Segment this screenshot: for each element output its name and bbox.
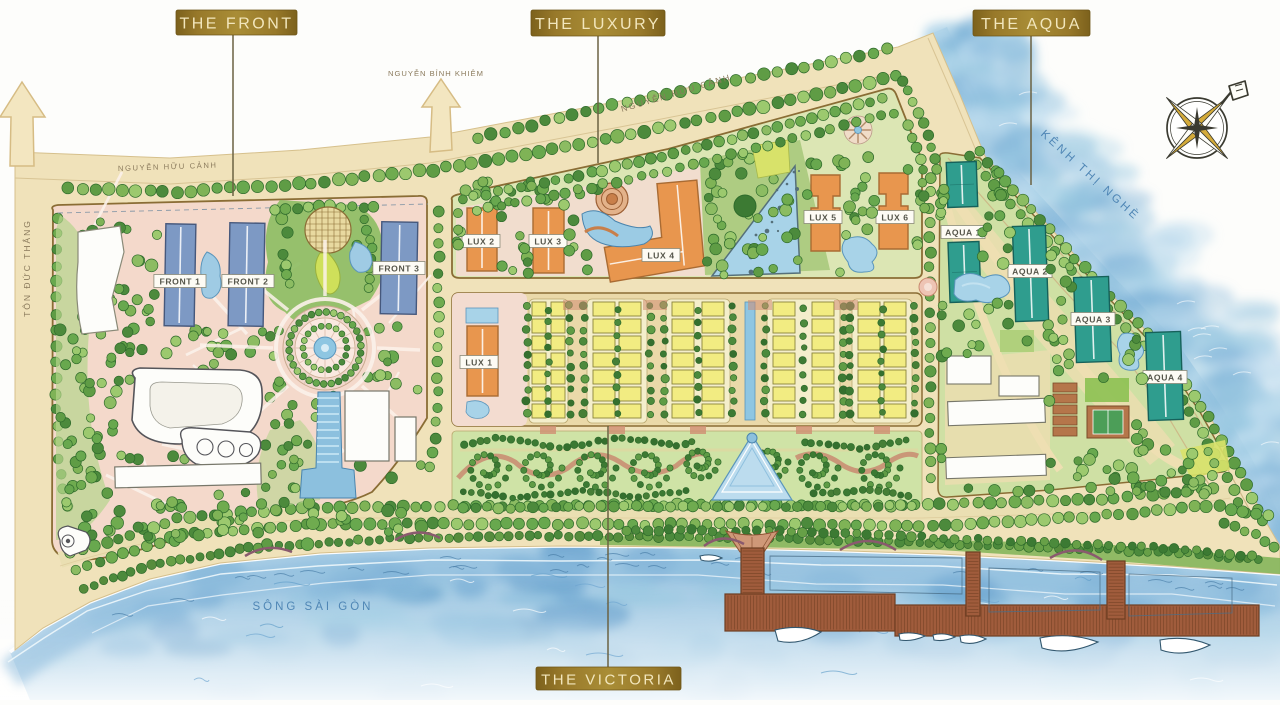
svg-text:THE LUXURY: THE LUXURY <box>535 16 661 33</box>
svg-text:FRONT 2: FRONT 2 <box>228 276 269 286</box>
svg-text:AQUA 3: AQUA 3 <box>1075 314 1111 324</box>
svg-text:THE AQUA: THE AQUA <box>981 16 1082 33</box>
svg-text:AQUA 1: AQUA 1 <box>945 227 981 237</box>
svg-text:LUX 4: LUX 4 <box>647 250 674 260</box>
svg-text:TÔN ĐỨC THẮNG: TÔN ĐỨC THẮNG <box>22 219 32 317</box>
svg-text:AQUA 2: AQUA 2 <box>1012 266 1048 276</box>
svg-text:LUX 6: LUX 6 <box>881 212 908 222</box>
svg-text:LUX 2: LUX 2 <box>467 236 494 246</box>
svg-text:THE FRONT: THE FRONT <box>179 16 293 33</box>
svg-text:FRONT 3: FRONT 3 <box>379 263 420 273</box>
svg-text:AQUA 4: AQUA 4 <box>1147 372 1183 382</box>
svg-text:SÔNG SÀI GÒN: SÔNG SÀI GÒN <box>253 600 374 613</box>
svg-text:FRONT 1: FRONT 1 <box>160 276 201 286</box>
svg-text:LUX 1: LUX 1 <box>465 357 492 367</box>
svg-text:LUX 3: LUX 3 <box>534 236 561 246</box>
svg-text:THE VICTORIA: THE VICTORIA <box>541 672 676 689</box>
svg-text:LUX 5: LUX 5 <box>809 212 836 222</box>
svg-text:NGUYỄN BỈNH KHIÊM: NGUYỄN BỈNH KHIÊM <box>388 69 484 78</box>
